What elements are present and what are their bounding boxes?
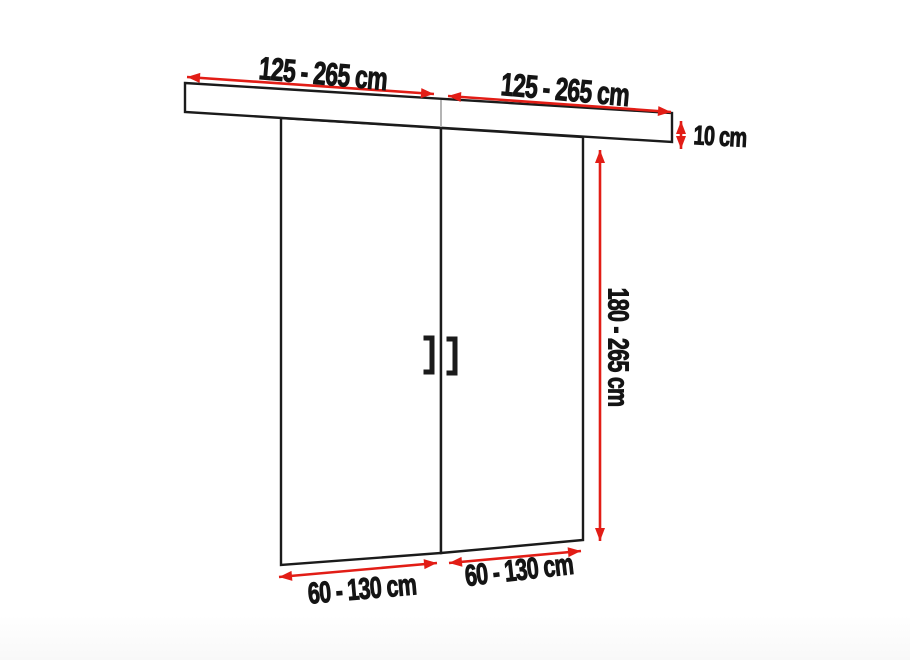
door-drawing — [0, 0, 910, 660]
right-door-panel — [441, 128, 583, 553]
left-door-panel — [281, 118, 441, 565]
dimension-diagram: 125 - 265 cm 125 - 265 cm 10 cm 180 - 26… — [0, 0, 910, 660]
dim-label-rail-height: 10 cm — [693, 120, 748, 154]
dim-label-door-height: 180 - 265 cm — [601, 288, 634, 407]
